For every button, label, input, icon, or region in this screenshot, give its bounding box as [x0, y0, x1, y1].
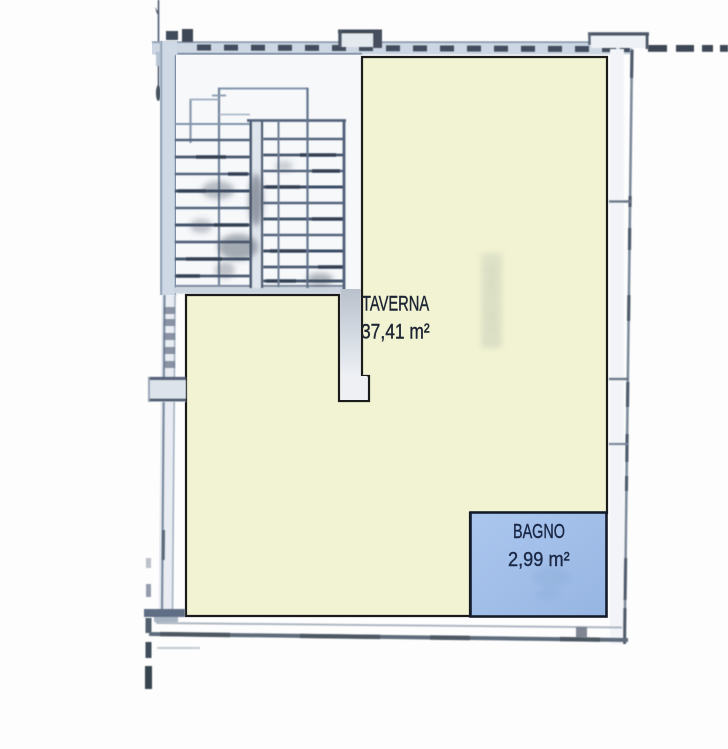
svg-text:37,41 m²: 37,41 m²: [361, 321, 430, 344]
svg-text:2,99 m²: 2,99 m²: [508, 549, 570, 571]
svg-text:CANTINA: CANTINA: [482, 263, 501, 348]
svg-text:TAVERNA: TAVERNA: [362, 292, 430, 315]
svg-text:BAGNO: BAGNO: [513, 520, 565, 543]
